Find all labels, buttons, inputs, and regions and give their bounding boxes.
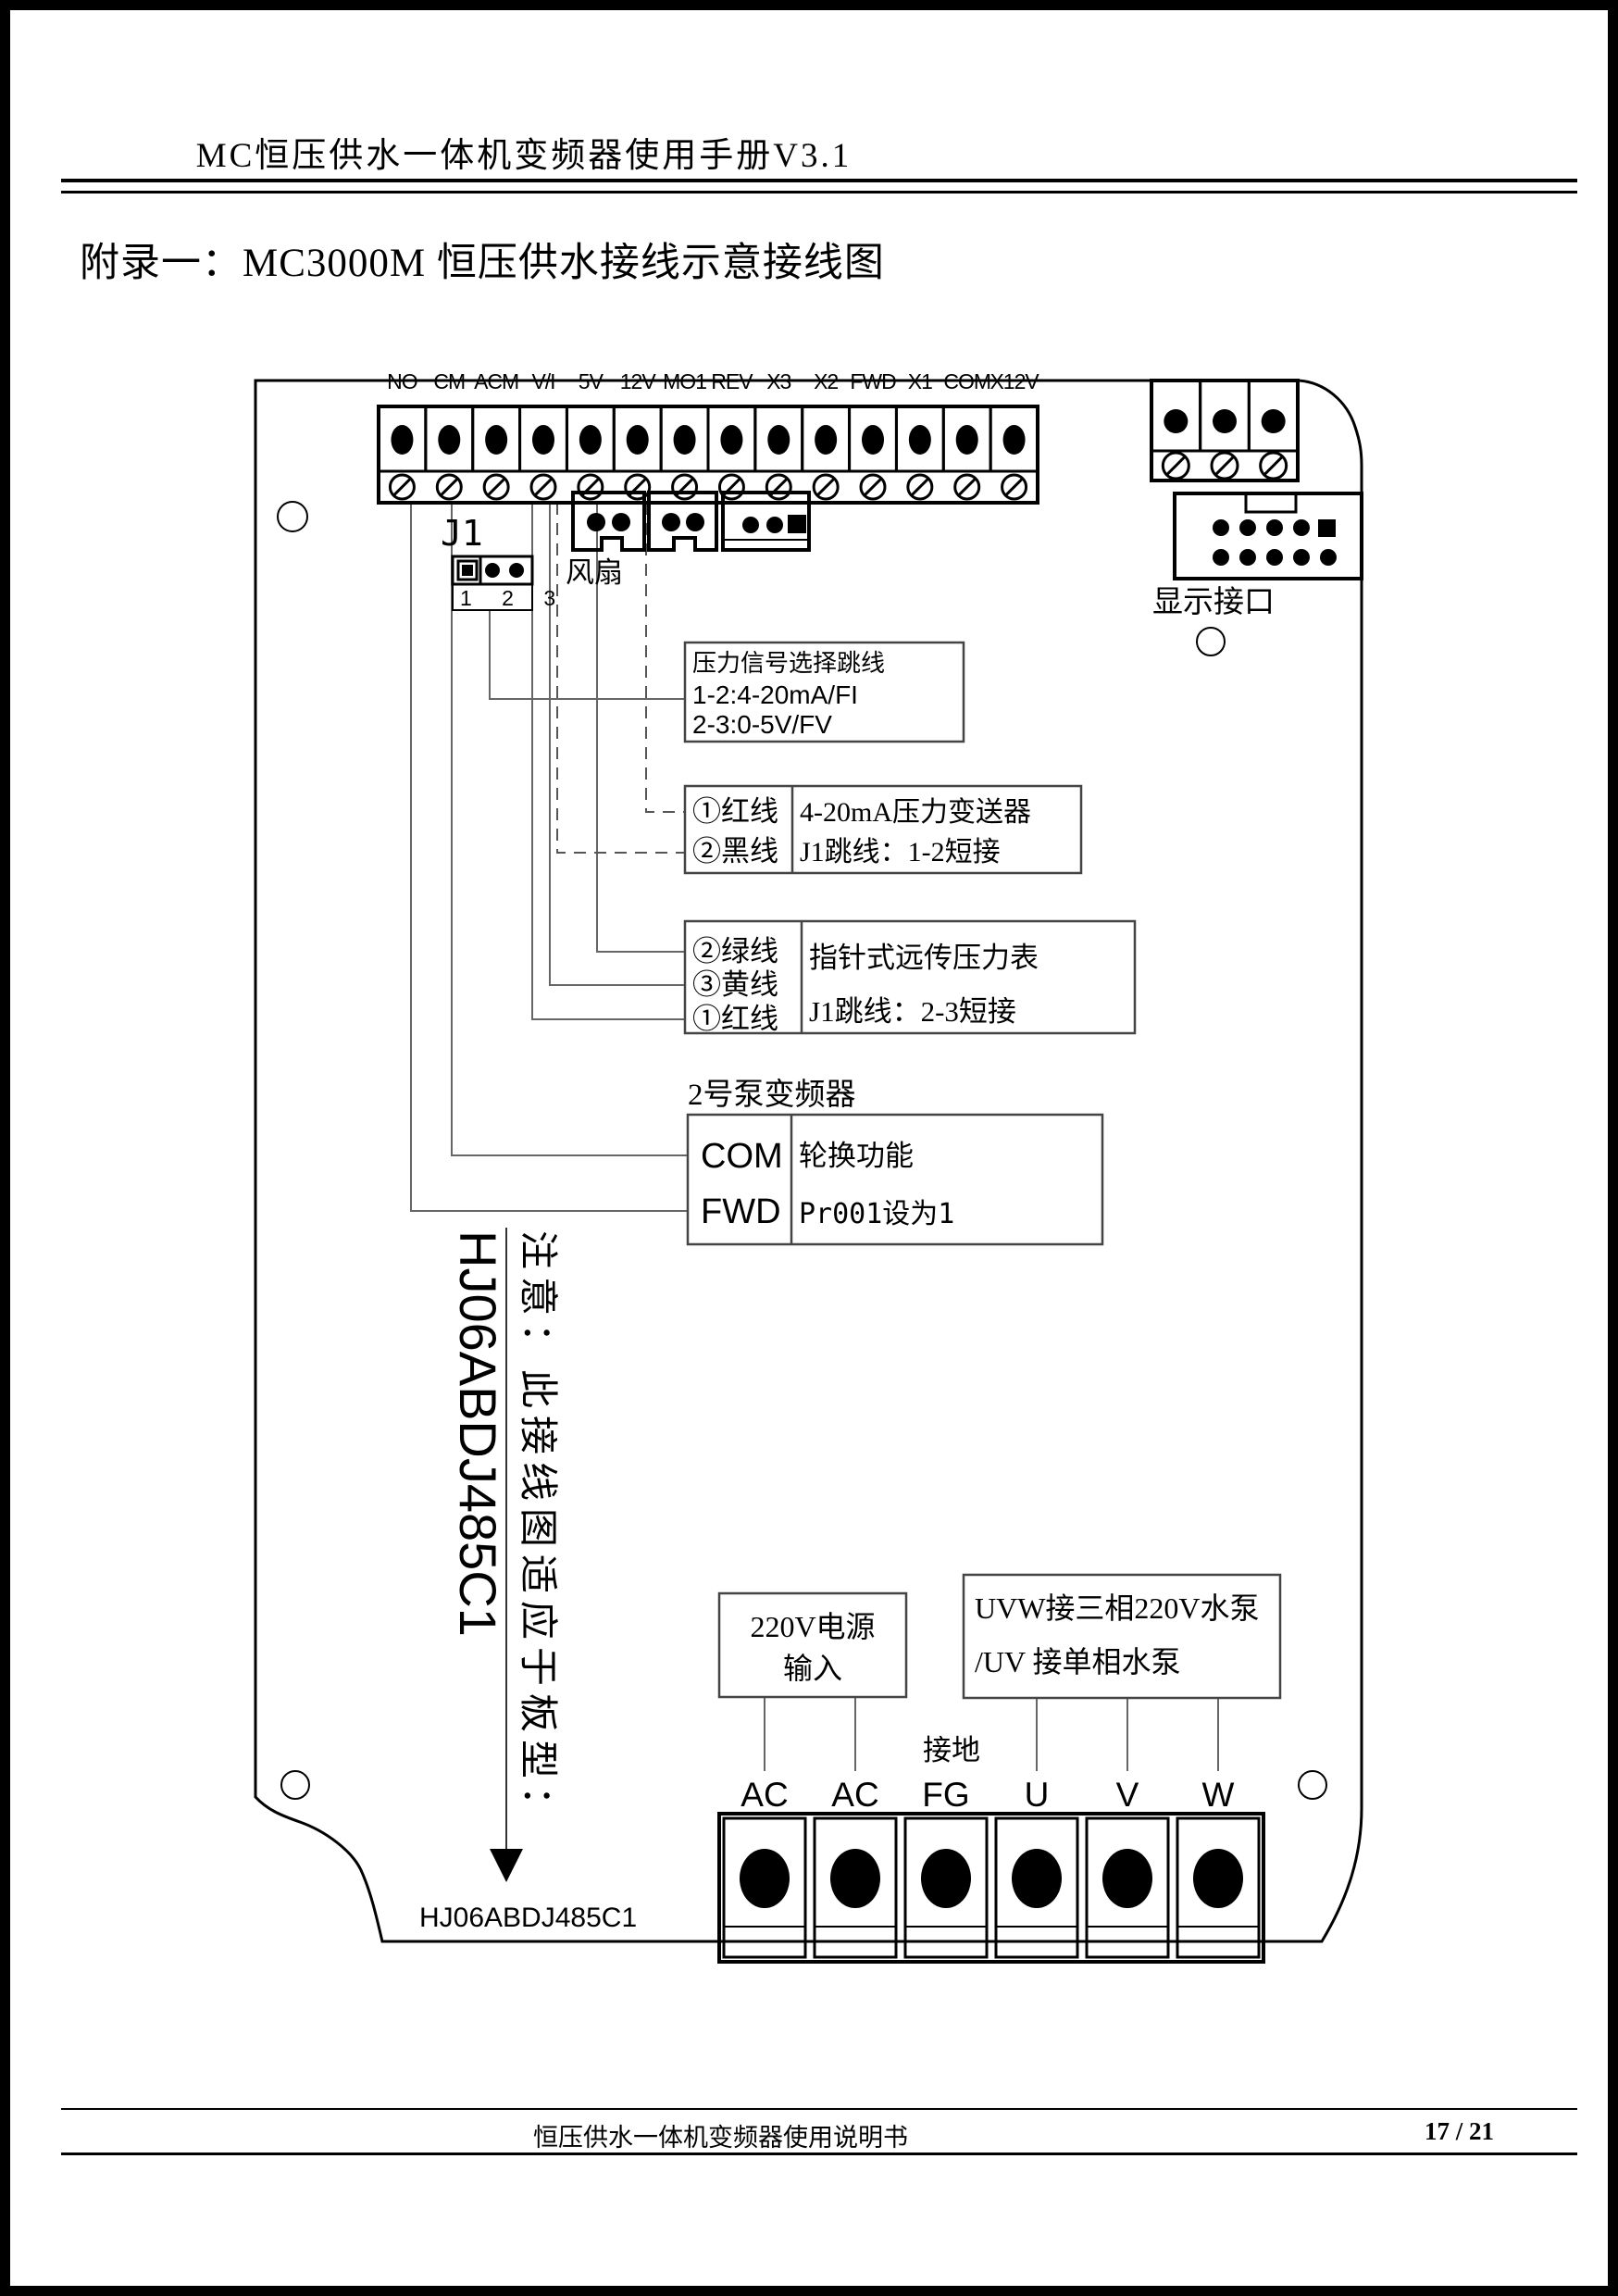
terminal-label-5V: 5V: [579, 369, 604, 393]
transmitter-desc1: 4-20mA压力变送器: [800, 797, 1031, 828]
pump2-terminal2: FWD: [701, 1192, 781, 1231]
j1-jumper: J1 1 2 3: [441, 513, 567, 610]
terminal-label-X12V: X12V: [989, 369, 1039, 393]
manual-page: MC恒压供水一体机变频器使用手册V3.1 附录一：MC3000M 恒压供水接线示…: [0, 0, 1618, 2296]
power-in-line1: 220V电源: [750, 1610, 875, 1643]
power-terminal-label-U-3: U: [1025, 1776, 1050, 1814]
footer-rule-bottom: [61, 2152, 1577, 2155]
terminal-label-X1: X1: [908, 369, 932, 393]
control-terminal-strip: [379, 406, 1038, 499]
terminal-label-X3: X3: [766, 369, 790, 393]
aux-terminal-strip: [1151, 381, 1298, 479]
pump2-terminal1: COM: [701, 1137, 783, 1176]
callout-power-in: 220V电源 输入: [719, 1593, 906, 1697]
arrow-head: [490, 1849, 523, 1882]
terminal-label-MO1: MO1: [663, 369, 706, 393]
power-in-line2: 输入: [783, 1652, 842, 1685]
power-terminal-label-V-4: V: [1116, 1776, 1139, 1814]
pump-out-line1: UVW接三相220V水泵: [975, 1591, 1260, 1625]
power-terminal-label-AC-1: AC: [831, 1776, 878, 1814]
terminal-label-FWD: FWD: [850, 369, 896, 393]
display-port-label: 显示接口: [1152, 586, 1275, 619]
transmitter-desc2: J1跳线：1-2短接: [800, 837, 1001, 867]
terminal-label-ACM: ACM: [474, 369, 518, 393]
gauge-desc1: 指针式远传压力表: [809, 942, 1039, 974]
j1-label: J1: [441, 513, 483, 554]
power-terminal-label-W-5: W: [1202, 1776, 1235, 1814]
gauge-wire2: ③黄线: [692, 968, 778, 1001]
board-type-bottom: HJ06ABDJ485C1: [419, 1903, 637, 1933]
power-terminal-block: [724, 1818, 1259, 1957]
callout-pump-out: UVW接三相220V水泵 /UV 接单相水泵: [964, 1575, 1280, 1698]
transmitter-wire2: ②黑线: [692, 835, 778, 867]
terminal-label-REV: REV: [711, 369, 753, 393]
terminal-label-CM: CM: [433, 369, 465, 393]
pump2-desc2: Pr001设为1: [799, 1198, 954, 1230]
jumper-select-opt2: 2-3:0-5V/FV: [692, 710, 832, 739]
gauge-wire3: ①红线: [692, 1003, 778, 1035]
terminal-label-X2: X2: [814, 369, 838, 393]
j1-pin-numbers: 1 2 3: [460, 586, 567, 610]
terminal-label-NO: NO: [387, 369, 417, 393]
power-terminal-label-FG-2: FG: [922, 1776, 969, 1814]
jumper-select-title: 压力信号选择跳线: [692, 650, 885, 677]
terminal-label-V/I: V/I: [531, 369, 554, 393]
pump-out-line2: /UV 接单相水泵: [975, 1645, 1181, 1678]
fan-connector: 风扇: [566, 493, 644, 589]
wiring-diagram: NOCMACMV/I5V12VMO1REVX3X2FWDX1COMX12V J1…: [10, 10, 1618, 2296]
power-terminal-block-frame: [719, 1814, 1263, 1962]
gauge-desc2: J1跳线：2-3短接: [809, 995, 1016, 1028]
footer-title: 恒压供水一体机变频器使用说明书: [533, 2117, 908, 2153]
transmitter-wire1: ①红线: [692, 795, 778, 828]
pump2-desc1: 轮换功能: [799, 1140, 914, 1172]
footer-page-number: 17 / 21: [1425, 2117, 1494, 2146]
terminal-label-COM: COM: [943, 369, 990, 393]
vertical-note: HJ06ABDJ485C1 注意：此接线图适应于板型： HJ06ABDJ485C…: [419, 1228, 637, 1933]
ground-label: 接地: [923, 1734, 980, 1766]
callout-jumper-select: 压力信号选择跳线 1-2:4-20mA/FI 2-3:0-5V/FV: [685, 643, 964, 742]
callout-pump2: 2号泵变频器 COM FWD 轮换功能 Pr001设为1: [688, 1078, 1102, 1244]
power-terminal-label-AC-0: AC: [741, 1776, 788, 1814]
board-type-vertical: HJ06ABDJ485C1: [449, 1230, 507, 1637]
footer-rule-top: [61, 2108, 1577, 2110]
pump2-title: 2号泵变频器: [688, 1078, 856, 1112]
terminal-label-12V: 12V: [620, 369, 657, 393]
display-connector: 显示接口: [1152, 493, 1362, 619]
callout-gauge: ②绿线 ③黄线 ①红线 指针式远传压力表 J1跳线：2-3短接: [685, 921, 1135, 1035]
fan-label: 风扇: [566, 556, 623, 589]
power-terminal-labels: ACACFGUVW: [741, 1776, 1234, 1814]
jumper-select-opt1: 1-2:4-20mA/FI: [692, 680, 858, 709]
note-text-vertical: 注意：此接线图适应于板型：: [516, 1230, 559, 1832]
callout-transmitter: ①红线 ②黑线 4-20mA压力变送器 J1跳线：1-2短接: [685, 786, 1081, 873]
gauge-wire1: ②绿线: [692, 935, 778, 967]
